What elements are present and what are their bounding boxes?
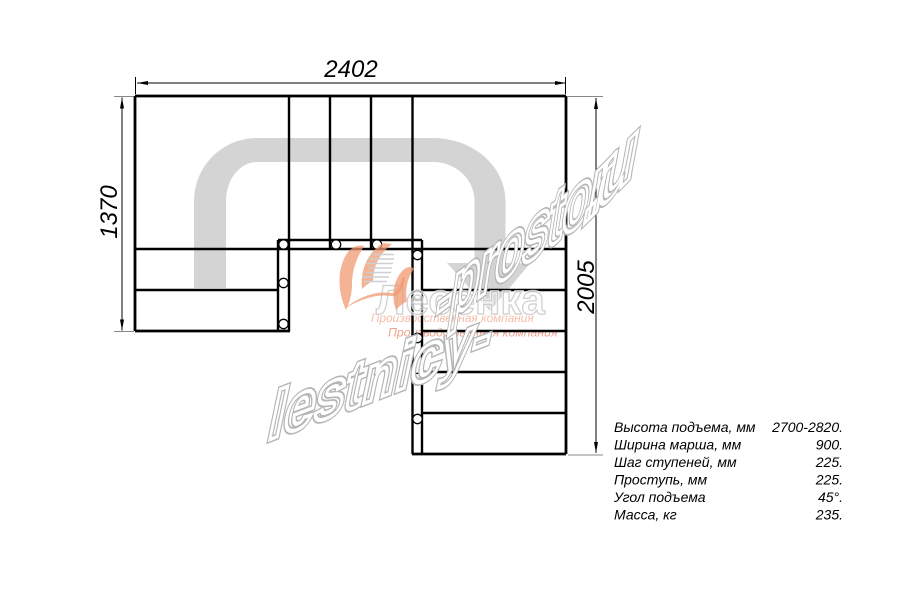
svg-text:Ширина марша, мм: Ширина марша, мм bbox=[614, 437, 742, 453]
svg-text:2402: 2402 bbox=[323, 56, 377, 83]
svg-text:45°.: 45°. bbox=[818, 489, 843, 505]
svg-text:900.: 900. bbox=[816, 437, 843, 453]
svg-text:Шаг ступеней, мм: Шаг ступеней, мм bbox=[614, 454, 737, 470]
svg-text:235.: 235. bbox=[815, 507, 843, 523]
svg-text:225.: 225. bbox=[815, 454, 843, 470]
svg-text:Проступь, мм: Проступь, мм bbox=[614, 472, 708, 488]
svg-text:Высота подъема, мм: Высота подъема, мм bbox=[614, 419, 756, 435]
svg-text:2700-2820.: 2700-2820. bbox=[771, 419, 843, 435]
svg-text:225.: 225. bbox=[815, 472, 843, 488]
svg-text:2005: 2005 bbox=[573, 260, 600, 315]
svg-text:Угол подъема: Угол подъема bbox=[613, 489, 706, 505]
svg-text:Масса, кг: Масса, кг bbox=[614, 507, 677, 523]
svg-text:1370: 1370 bbox=[96, 185, 123, 239]
